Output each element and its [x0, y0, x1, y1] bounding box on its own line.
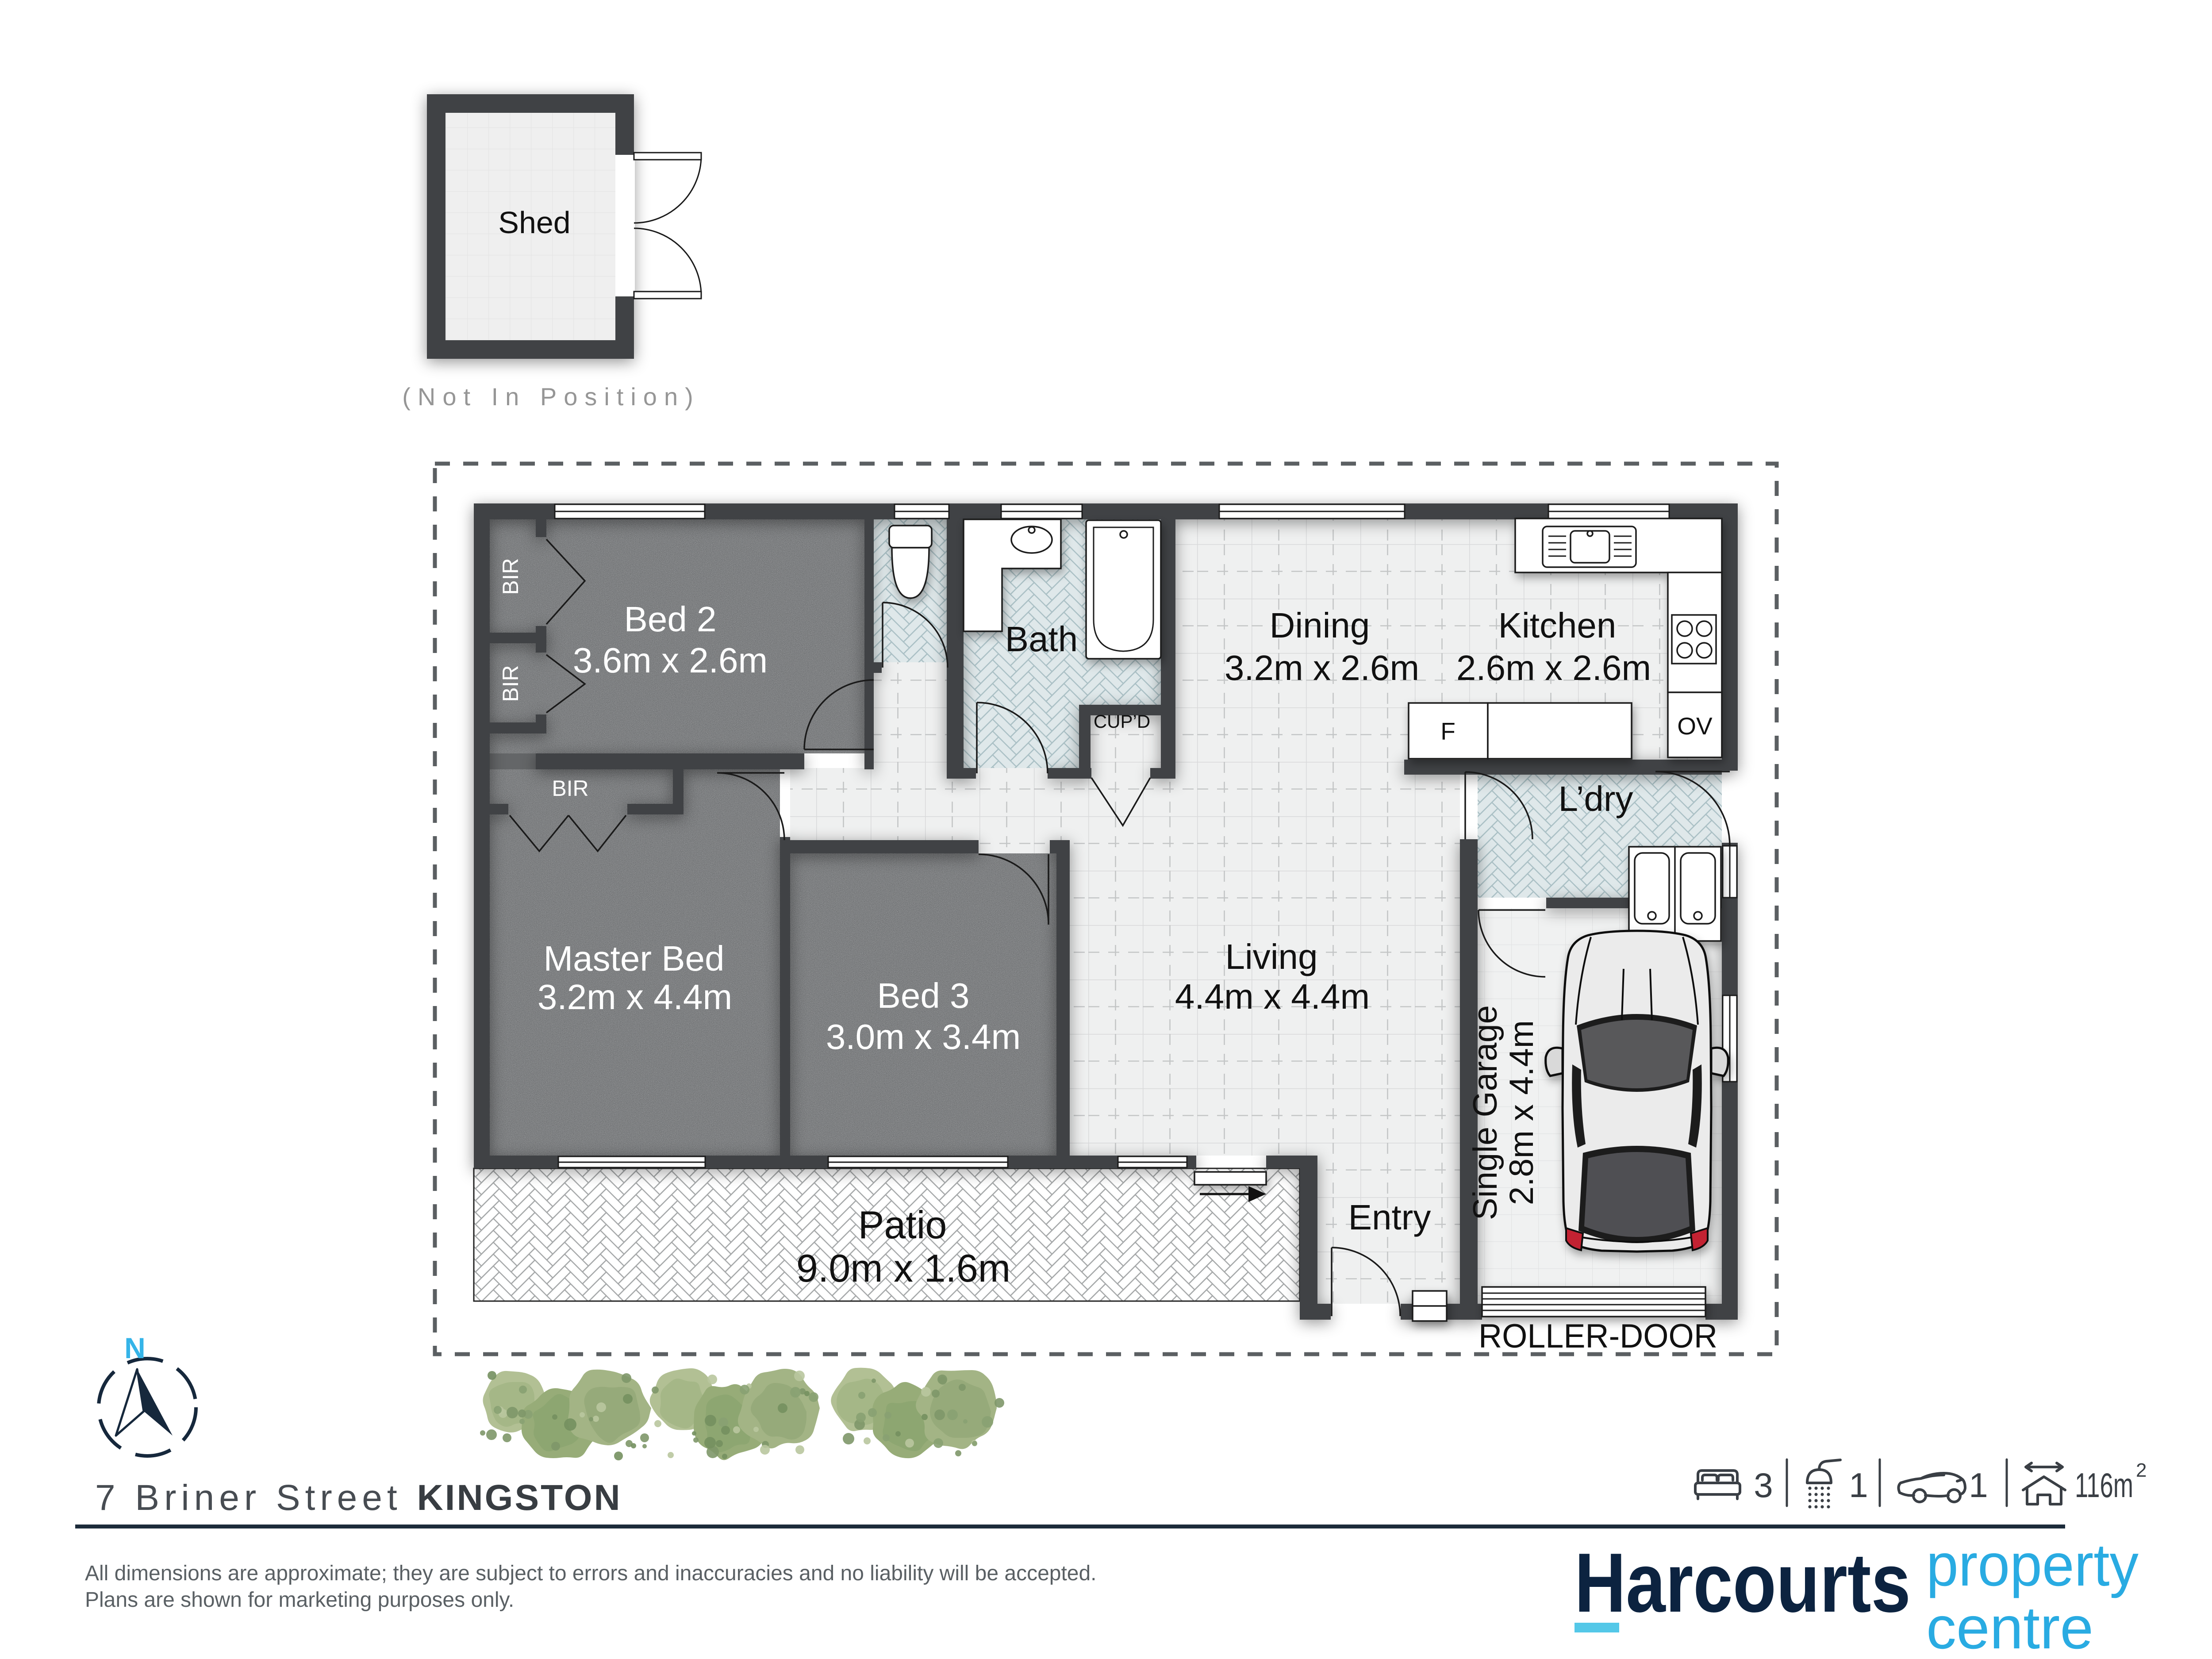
svg-text:3.2m x 2.6m: 3.2m x 2.6m: [1225, 648, 1419, 687]
svg-text:1: 1: [1849, 1466, 1868, 1505]
svg-text:1: 1: [1969, 1466, 1988, 1505]
svg-text:116m: 116m: [2075, 1466, 2133, 1505]
svg-text:7 Briner Street KINGSTON: 7 Briner Street KINGSTON: [95, 1478, 622, 1518]
svg-text:Harcourts: Harcourts: [1575, 1536, 1911, 1630]
svg-text:Shed: Shed: [498, 205, 570, 240]
svg-text:OV: OV: [1677, 712, 1713, 740]
svg-text:BIR: BIR: [552, 776, 588, 801]
svg-text:Kitchen: Kitchen: [1498, 606, 1617, 645]
svg-text:3.6m x 2.6m: 3.6m x 2.6m: [573, 641, 768, 680]
svg-text:N: N: [124, 1332, 146, 1364]
svg-text:Entry: Entry: [1348, 1198, 1431, 1237]
svg-text:Single Garage: Single Garage: [1467, 1005, 1504, 1220]
svg-text:Bath: Bath: [1005, 619, 1078, 659]
svg-text:2: 2: [2136, 1459, 2147, 1481]
svg-text:9.0m x 1.6m: 9.0m x 1.6m: [796, 1246, 1010, 1290]
svg-text:CUP’D: CUP’D: [1094, 711, 1150, 732]
svg-text:BIR: BIR: [498, 558, 523, 595]
svg-text:centre: centre: [1926, 1594, 2093, 1659]
svg-text:Living: Living: [1225, 937, 1317, 976]
svg-text:BIR: BIR: [498, 665, 523, 702]
svg-text:Patio: Patio: [858, 1203, 947, 1247]
svg-text:Bed 2: Bed 2: [624, 599, 716, 639]
svg-text:2.6m x 2.6m: 2.6m x 2.6m: [1456, 648, 1651, 687]
svg-text:property: property: [1926, 1531, 2139, 1598]
svg-text:Dining: Dining: [1270, 606, 1370, 645]
svg-text:3.2m x 4.4m: 3.2m x 4.4m: [538, 977, 732, 1017]
svg-text:2.8m x 4.4m: 2.8m x 4.4m: [1503, 1020, 1540, 1205]
svg-text:L’dry: L’dry: [1559, 779, 1633, 818]
svg-text:ROLLER-DOOR: ROLLER-DOOR: [1479, 1317, 1717, 1355]
svg-text:Master Bed: Master Bed: [543, 939, 724, 978]
svg-text:(Not In Position): (Not In Position): [402, 383, 700, 411]
svg-text:4.4m x 4.4m: 4.4m x 4.4m: [1175, 977, 1370, 1016]
svg-text:F: F: [1440, 718, 1455, 745]
svg-text:All dimensions are approximate: All dimensions are approximate; they are…: [85, 1562, 1097, 1585]
svg-text:3.0m x 3.4m: 3.0m x 3.4m: [826, 1017, 1021, 1056]
svg-text:Bed 3: Bed 3: [877, 976, 969, 1015]
svg-text:3: 3: [1754, 1466, 1773, 1505]
svg-text:Plans are shown for marketing: Plans are shown for marketing purposes o…: [85, 1588, 514, 1612]
